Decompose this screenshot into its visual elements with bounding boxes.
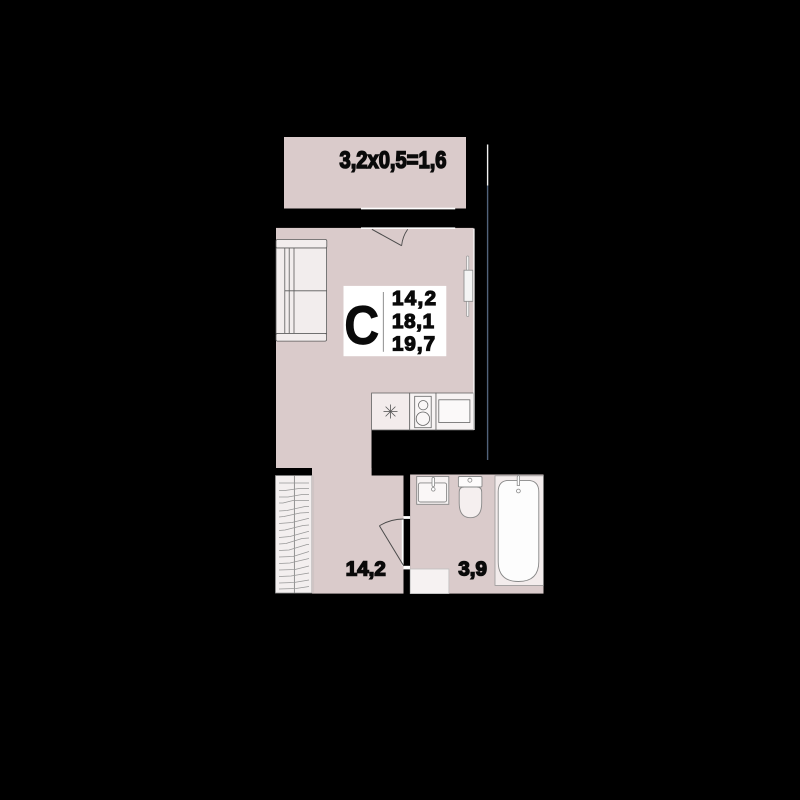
svg-text:3,2x0,5=1,6: 3,2x0,5=1,6 — [340, 147, 447, 174]
svg-text:14,2: 14,2 — [346, 558, 386, 581]
svg-text:14,2: 14,2 — [392, 287, 436, 310]
svg-text:19,7: 19,7 — [392, 332, 435, 355]
svg-text:C: C — [344, 294, 379, 356]
svg-text:3,9: 3,9 — [458, 558, 487, 581]
svg-text:18,1: 18,1 — [392, 310, 434, 333]
